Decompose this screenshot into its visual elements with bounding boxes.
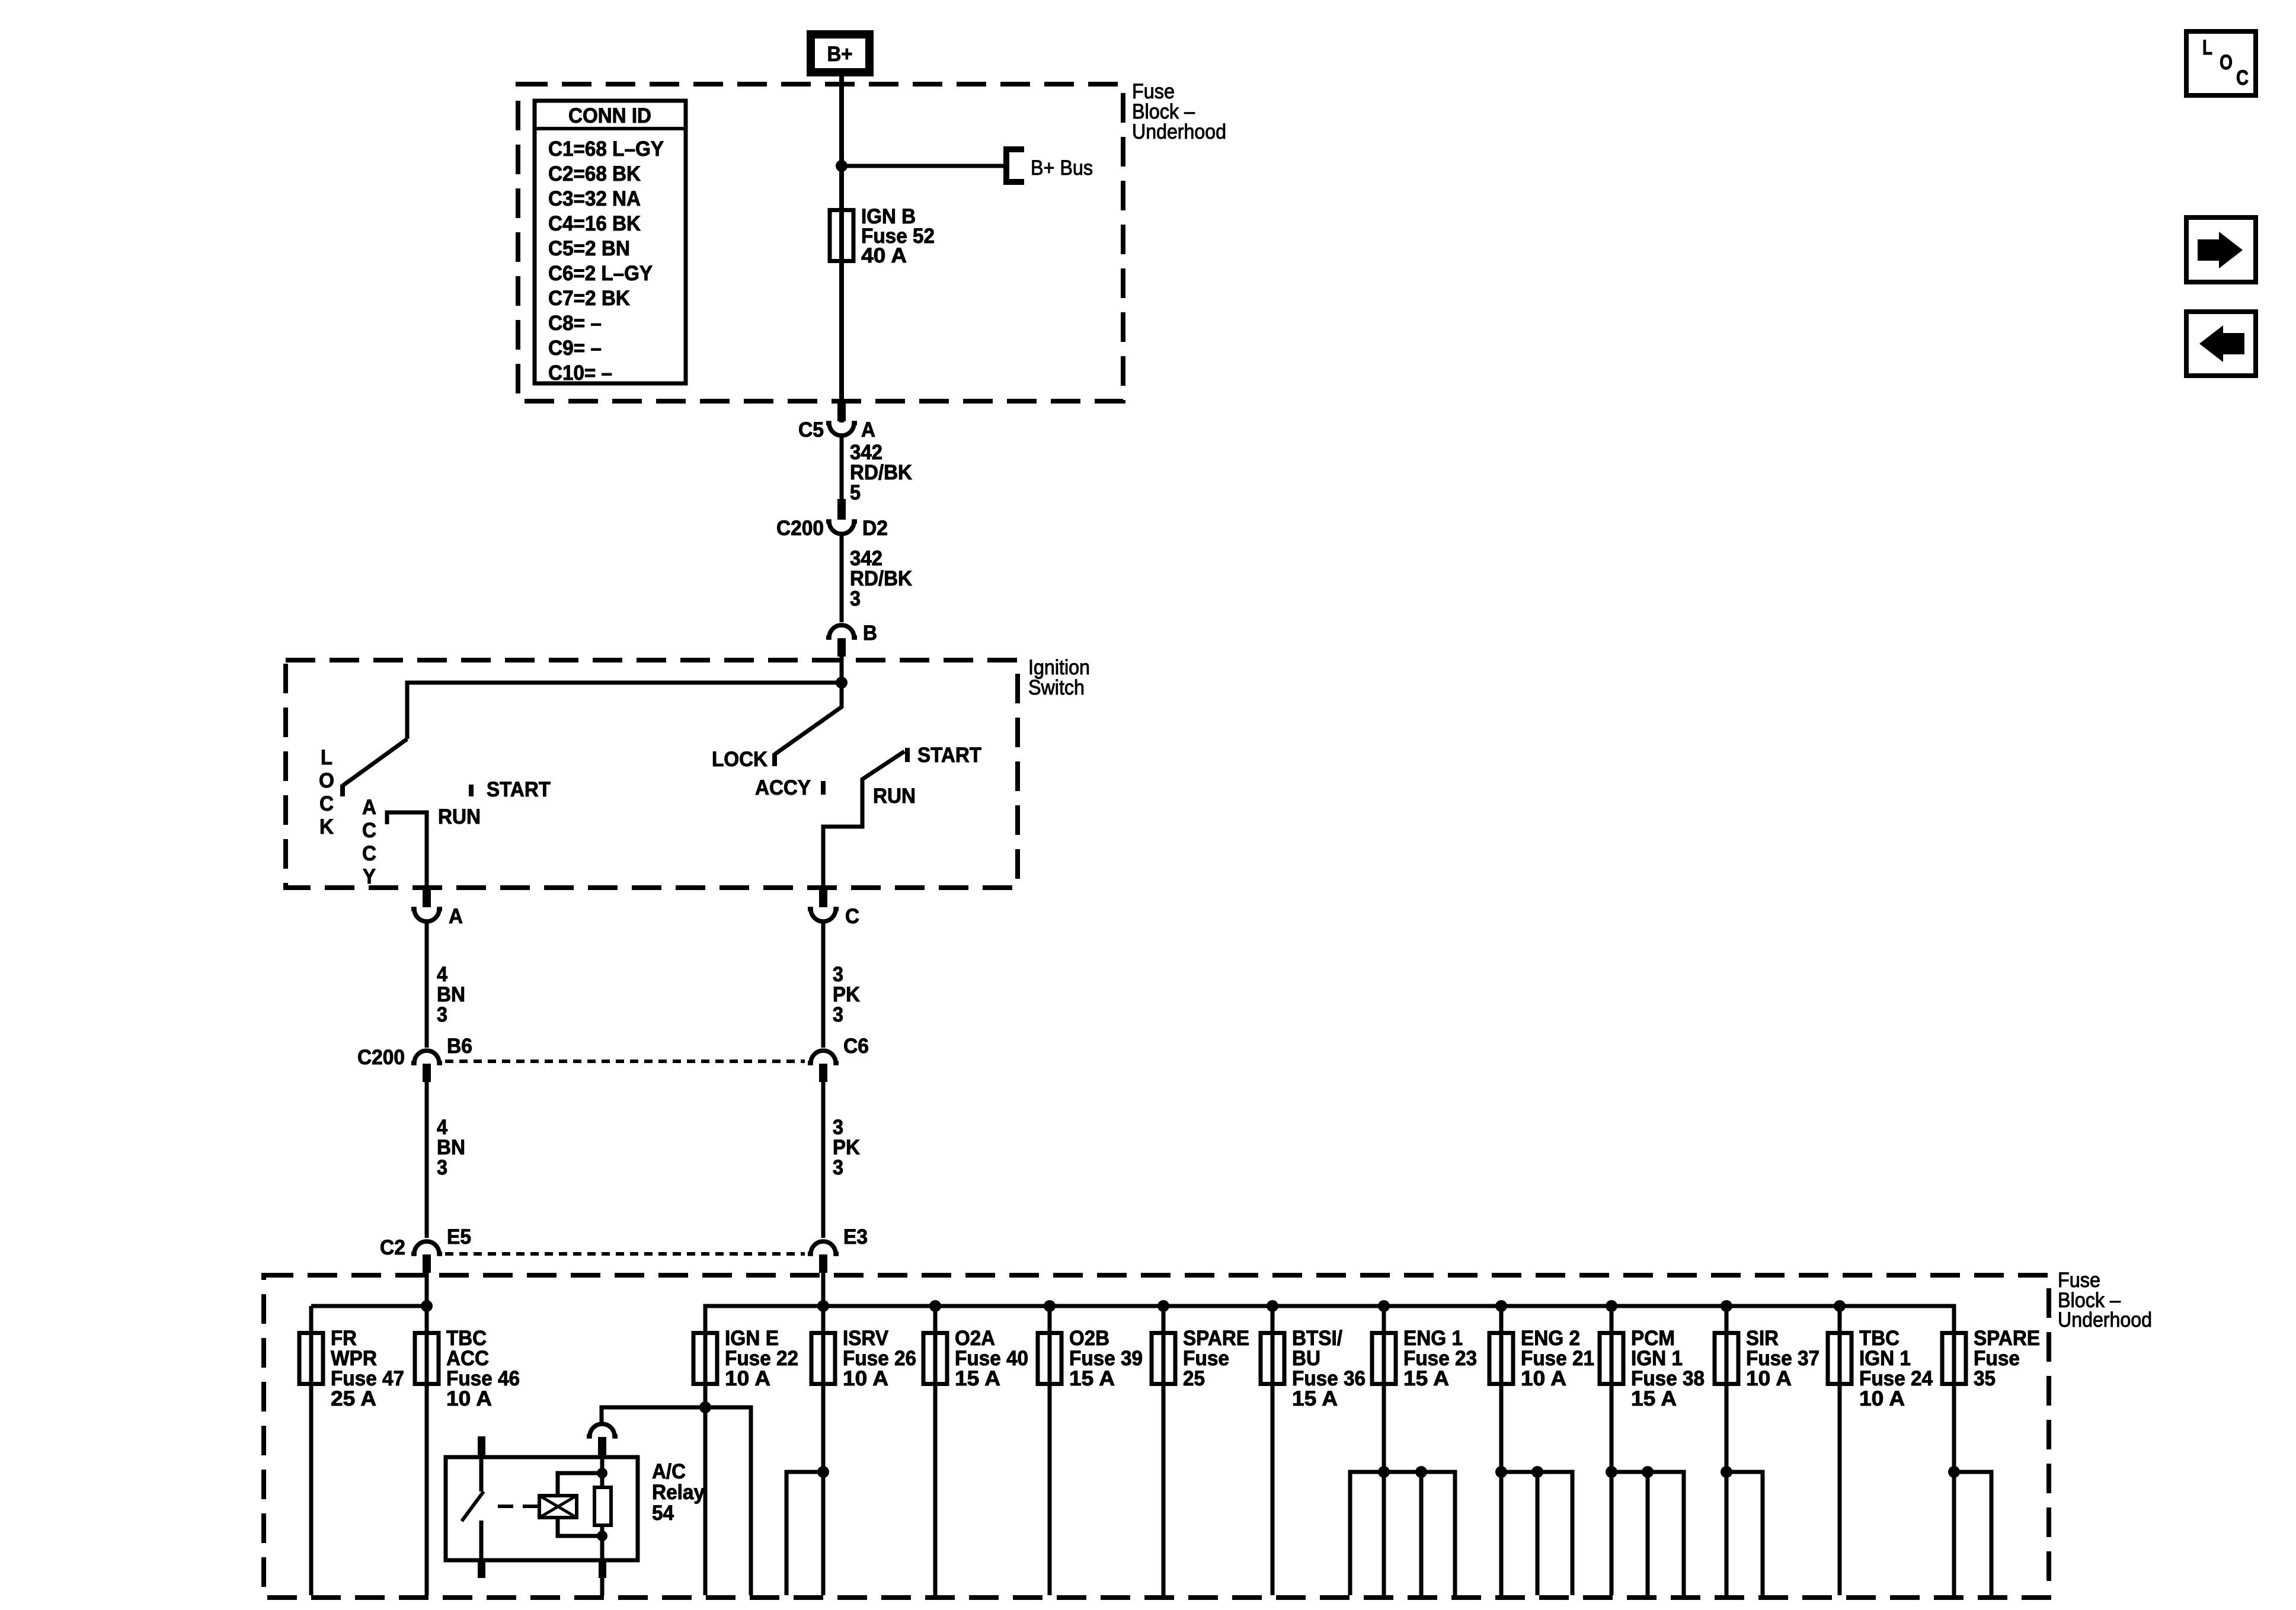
svg-text:RUN: RUN [438,805,481,828]
svg-text:C: C [845,905,859,928]
svg-text:15 A: 15 A [1403,1367,1449,1390]
svg-text:C10= –: C10= – [548,361,612,385]
svg-text:C7=2 BK: C7=2 BK [548,287,630,310]
svg-text:C2: C2 [380,1236,405,1259]
svg-text:3: 3 [850,587,861,610]
svg-text:25: 25 [1183,1367,1205,1390]
svg-text:B6: B6 [447,1035,472,1058]
svg-text:RUN: RUN [873,785,916,808]
svg-text:C2=68 BK: C2=68 BK [548,162,641,185]
svg-text:E3: E3 [843,1225,868,1249]
svg-text:START: START [917,744,981,767]
svg-text:Underhood: Underhood [1132,120,1226,143]
svg-text:O: O [319,769,334,792]
svg-text:O: O [2220,51,2233,74]
svg-text:L: L [2202,36,2212,59]
svg-text:LOCK: LOCK [712,748,768,771]
svg-text:C8= –: C8= – [548,312,602,335]
svg-text:C6=2 L–GY: C6=2 L–GY [548,262,653,285]
svg-text:A/C: A/C [652,1460,686,1483]
svg-text:C: C [362,819,376,842]
svg-text:15 A: 15 A [1631,1387,1677,1410]
svg-text:CONN ID: CONN ID [568,104,651,127]
svg-text:Relay: Relay [652,1481,705,1504]
svg-text:Underhood: Underhood [2058,1308,2152,1331]
svg-text:C4=16 BK: C4=16 BK [548,212,641,235]
svg-text:3: 3 [833,1003,843,1026]
svg-text:10 A: 10 A [843,1367,888,1390]
svg-text:C1=68 L–GY: C1=68 L–GY [548,137,664,161]
svg-text:B+ Bus: B+ Bus [1031,156,1093,180]
svg-text:C5=2 BN: C5=2 BN [548,237,630,260]
svg-text:40 A: 40 A [861,244,907,267]
svg-text:D2: D2 [862,517,888,540]
svg-text:L: L [321,746,332,769]
svg-text:10 A: 10 A [1859,1387,1905,1410]
svg-text:C: C [362,842,376,865]
svg-text:15 A: 15 A [955,1367,1000,1390]
svg-text:C: C [319,792,334,815]
svg-text:3: 3 [437,1156,447,1179]
svg-text:10 A: 10 A [446,1387,492,1410]
svg-text:Y: Y [363,865,376,888]
svg-text:15 A: 15 A [1069,1367,1115,1390]
svg-text:15 A: 15 A [1292,1387,1338,1410]
svg-text:ACCY: ACCY [755,776,811,799]
svg-text:5: 5 [850,481,861,504]
svg-text:K: K [319,815,334,838]
svg-text:A: A [861,418,875,441]
svg-text:B+: B+ [827,43,853,66]
svg-text:C200: C200 [357,1046,405,1069]
svg-text:10 A: 10 A [1521,1367,1566,1390]
svg-text:B: B [863,622,877,645]
svg-text:3: 3 [833,1156,843,1179]
svg-text:A: A [449,905,463,928]
svg-text:Switch: Switch [1028,676,1085,699]
svg-text:25 A: 25 A [331,1387,376,1410]
svg-text:C3=32 NA: C3=32 NA [548,187,641,210]
svg-text:E5: E5 [447,1225,471,1249]
svg-text:3: 3 [437,1003,447,1026]
svg-text:C: C [2236,66,2249,89]
svg-text:C200: C200 [776,517,824,540]
svg-text:C9= –: C9= – [548,337,602,360]
svg-text:54: 54 [652,1502,674,1525]
svg-text:10 A: 10 A [725,1367,770,1390]
svg-text:START: START [487,778,551,801]
svg-text:A: A [362,796,376,819]
svg-text:35: 35 [1974,1367,1996,1390]
svg-text:C5: C5 [798,418,824,441]
svg-text:C6: C6 [843,1035,869,1058]
svg-text:10 A: 10 A [1746,1367,1792,1390]
